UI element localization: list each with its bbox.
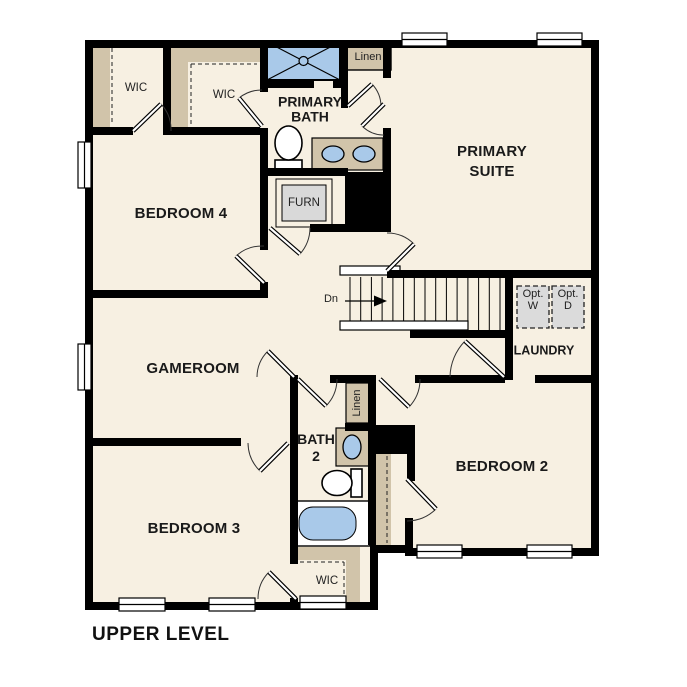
- laundry-label: LAUNDRY: [514, 344, 575, 357]
- bath2-toilet-icon: [322, 469, 362, 497]
- linen-bath2-label: Linen: [352, 390, 364, 417]
- wic-primary-label: WIC: [213, 89, 235, 101]
- primary-suite-label: PRIMARY SUITE: [457, 142, 527, 183]
- bath2-vanity: [336, 428, 369, 466]
- floor-plan: WIC WIC Linen PRIMARY BATH PRIMARY SUITE…: [0, 0, 687, 687]
- bedroom3-label: BEDROOM 3: [148, 521, 241, 537]
- window: [537, 33, 582, 46]
- plan-title: UPPER LEVEL: [92, 624, 229, 646]
- primary-toilet-icon: [275, 126, 302, 174]
- opt-washer-label: Opt. W: [523, 288, 544, 312]
- sink-icon: [343, 435, 361, 459]
- bedroom2-label: BEDROOM 2: [456, 459, 549, 475]
- gameroom-label: GAMEROOM: [146, 361, 239, 377]
- window: [78, 344, 91, 390]
- stairs-dn-label: Dn: [324, 294, 338, 306]
- stair-rail-bottom: [340, 321, 468, 330]
- primary-vanity: [312, 138, 383, 170]
- window: [209, 598, 255, 611]
- wic-bedroom3-label: WIC: [316, 575, 338, 587]
- window: [402, 33, 447, 46]
- wic-bedroom4-label: WIC: [125, 82, 147, 94]
- bathtub-icon: [293, 501, 370, 546]
- bedroom4-label: BEDROOM 4: [135, 206, 228, 222]
- sink-icon: [353, 146, 375, 162]
- chase: [345, 172, 391, 232]
- window: [417, 545, 462, 558]
- window: [78, 142, 91, 188]
- window: [527, 545, 572, 558]
- window: [119, 598, 165, 611]
- bath2-label: BATH 2: [297, 431, 335, 465]
- floor-plan-drawing: [0, 0, 687, 687]
- primary-bath-label: PRIMARY BATH: [278, 95, 342, 126]
- furnace-label: FURN: [288, 197, 320, 209]
- sink-icon: [322, 146, 344, 162]
- opt-dryer-label: Opt. D: [558, 288, 579, 312]
- window: [300, 596, 346, 609]
- linen-upper-label: Linen: [355, 52, 382, 64]
